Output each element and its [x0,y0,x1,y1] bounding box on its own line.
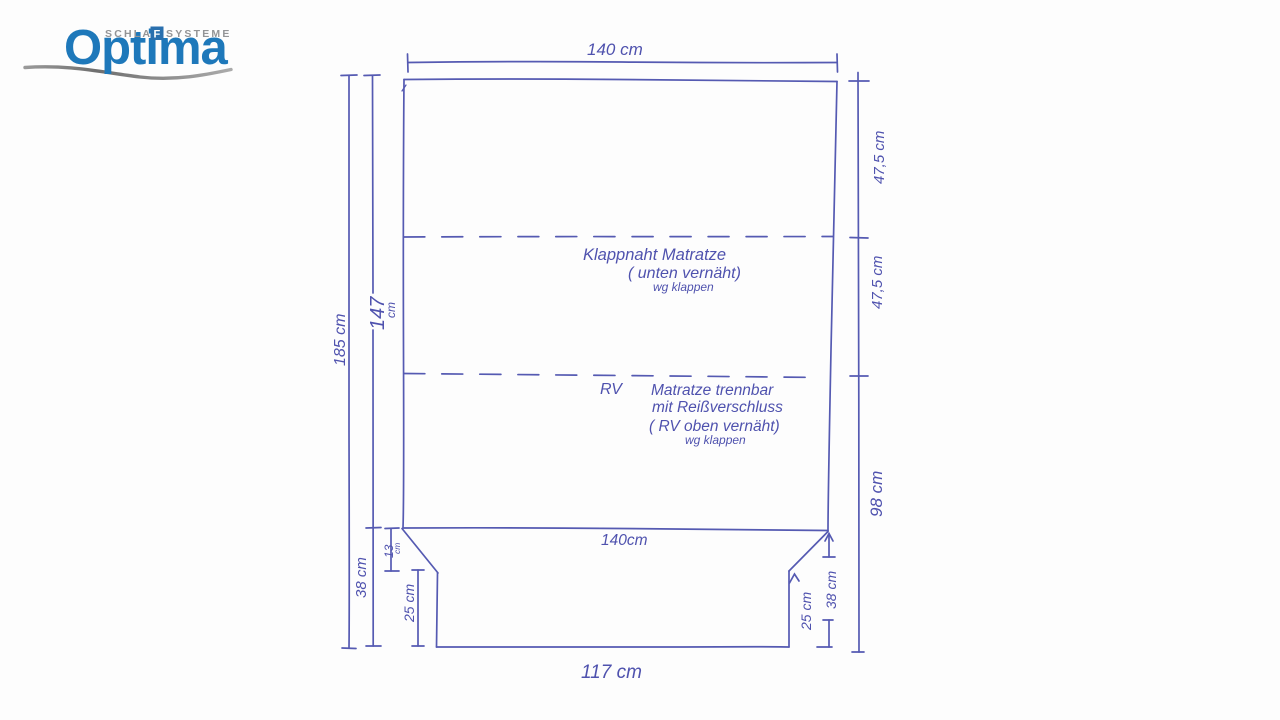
svg-text:117 cm: 117 cm [581,662,642,683]
svg-text:140cm: 140cm [601,532,648,549]
svg-text:47,5 cm: 47,5 cm [871,131,888,184]
svg-text:140 cm: 140 cm [587,40,643,59]
svg-text:25 cm: 25 cm [401,584,417,623]
svg-text:98 cm: 98 cm [867,471,886,517]
svg-text:47,5 cm: 47,5 cm [869,256,886,309]
svg-text:38 cm: 38 cm [353,557,370,598]
svg-text:mit Reißverschluss: mit Reißverschluss [652,399,783,416]
svg-text:wg klappen: wg klappen [653,280,714,294]
svg-text:Matratze trennbar: Matratze trennbar [651,382,774,399]
svg-text:25 cm: 25 cm [798,592,814,631]
svg-text:cm: cm [392,543,402,554]
svg-text:185 cm: 185 cm [332,314,349,366]
svg-text:SCHLA: SCHLA [105,28,152,40]
svg-text:F: F [154,29,161,41]
svg-text:wg klappen: wg klappen [685,433,746,447]
svg-text:cm: cm [384,302,398,318]
svg-text:38 cm: 38 cm [823,571,839,609]
svg-text:SYSTEME: SYSTEME [166,28,232,40]
svg-text:RV: RV [600,381,623,398]
svg-text:Klappnaht Matratze: Klappnaht Matratze [583,246,726,264]
